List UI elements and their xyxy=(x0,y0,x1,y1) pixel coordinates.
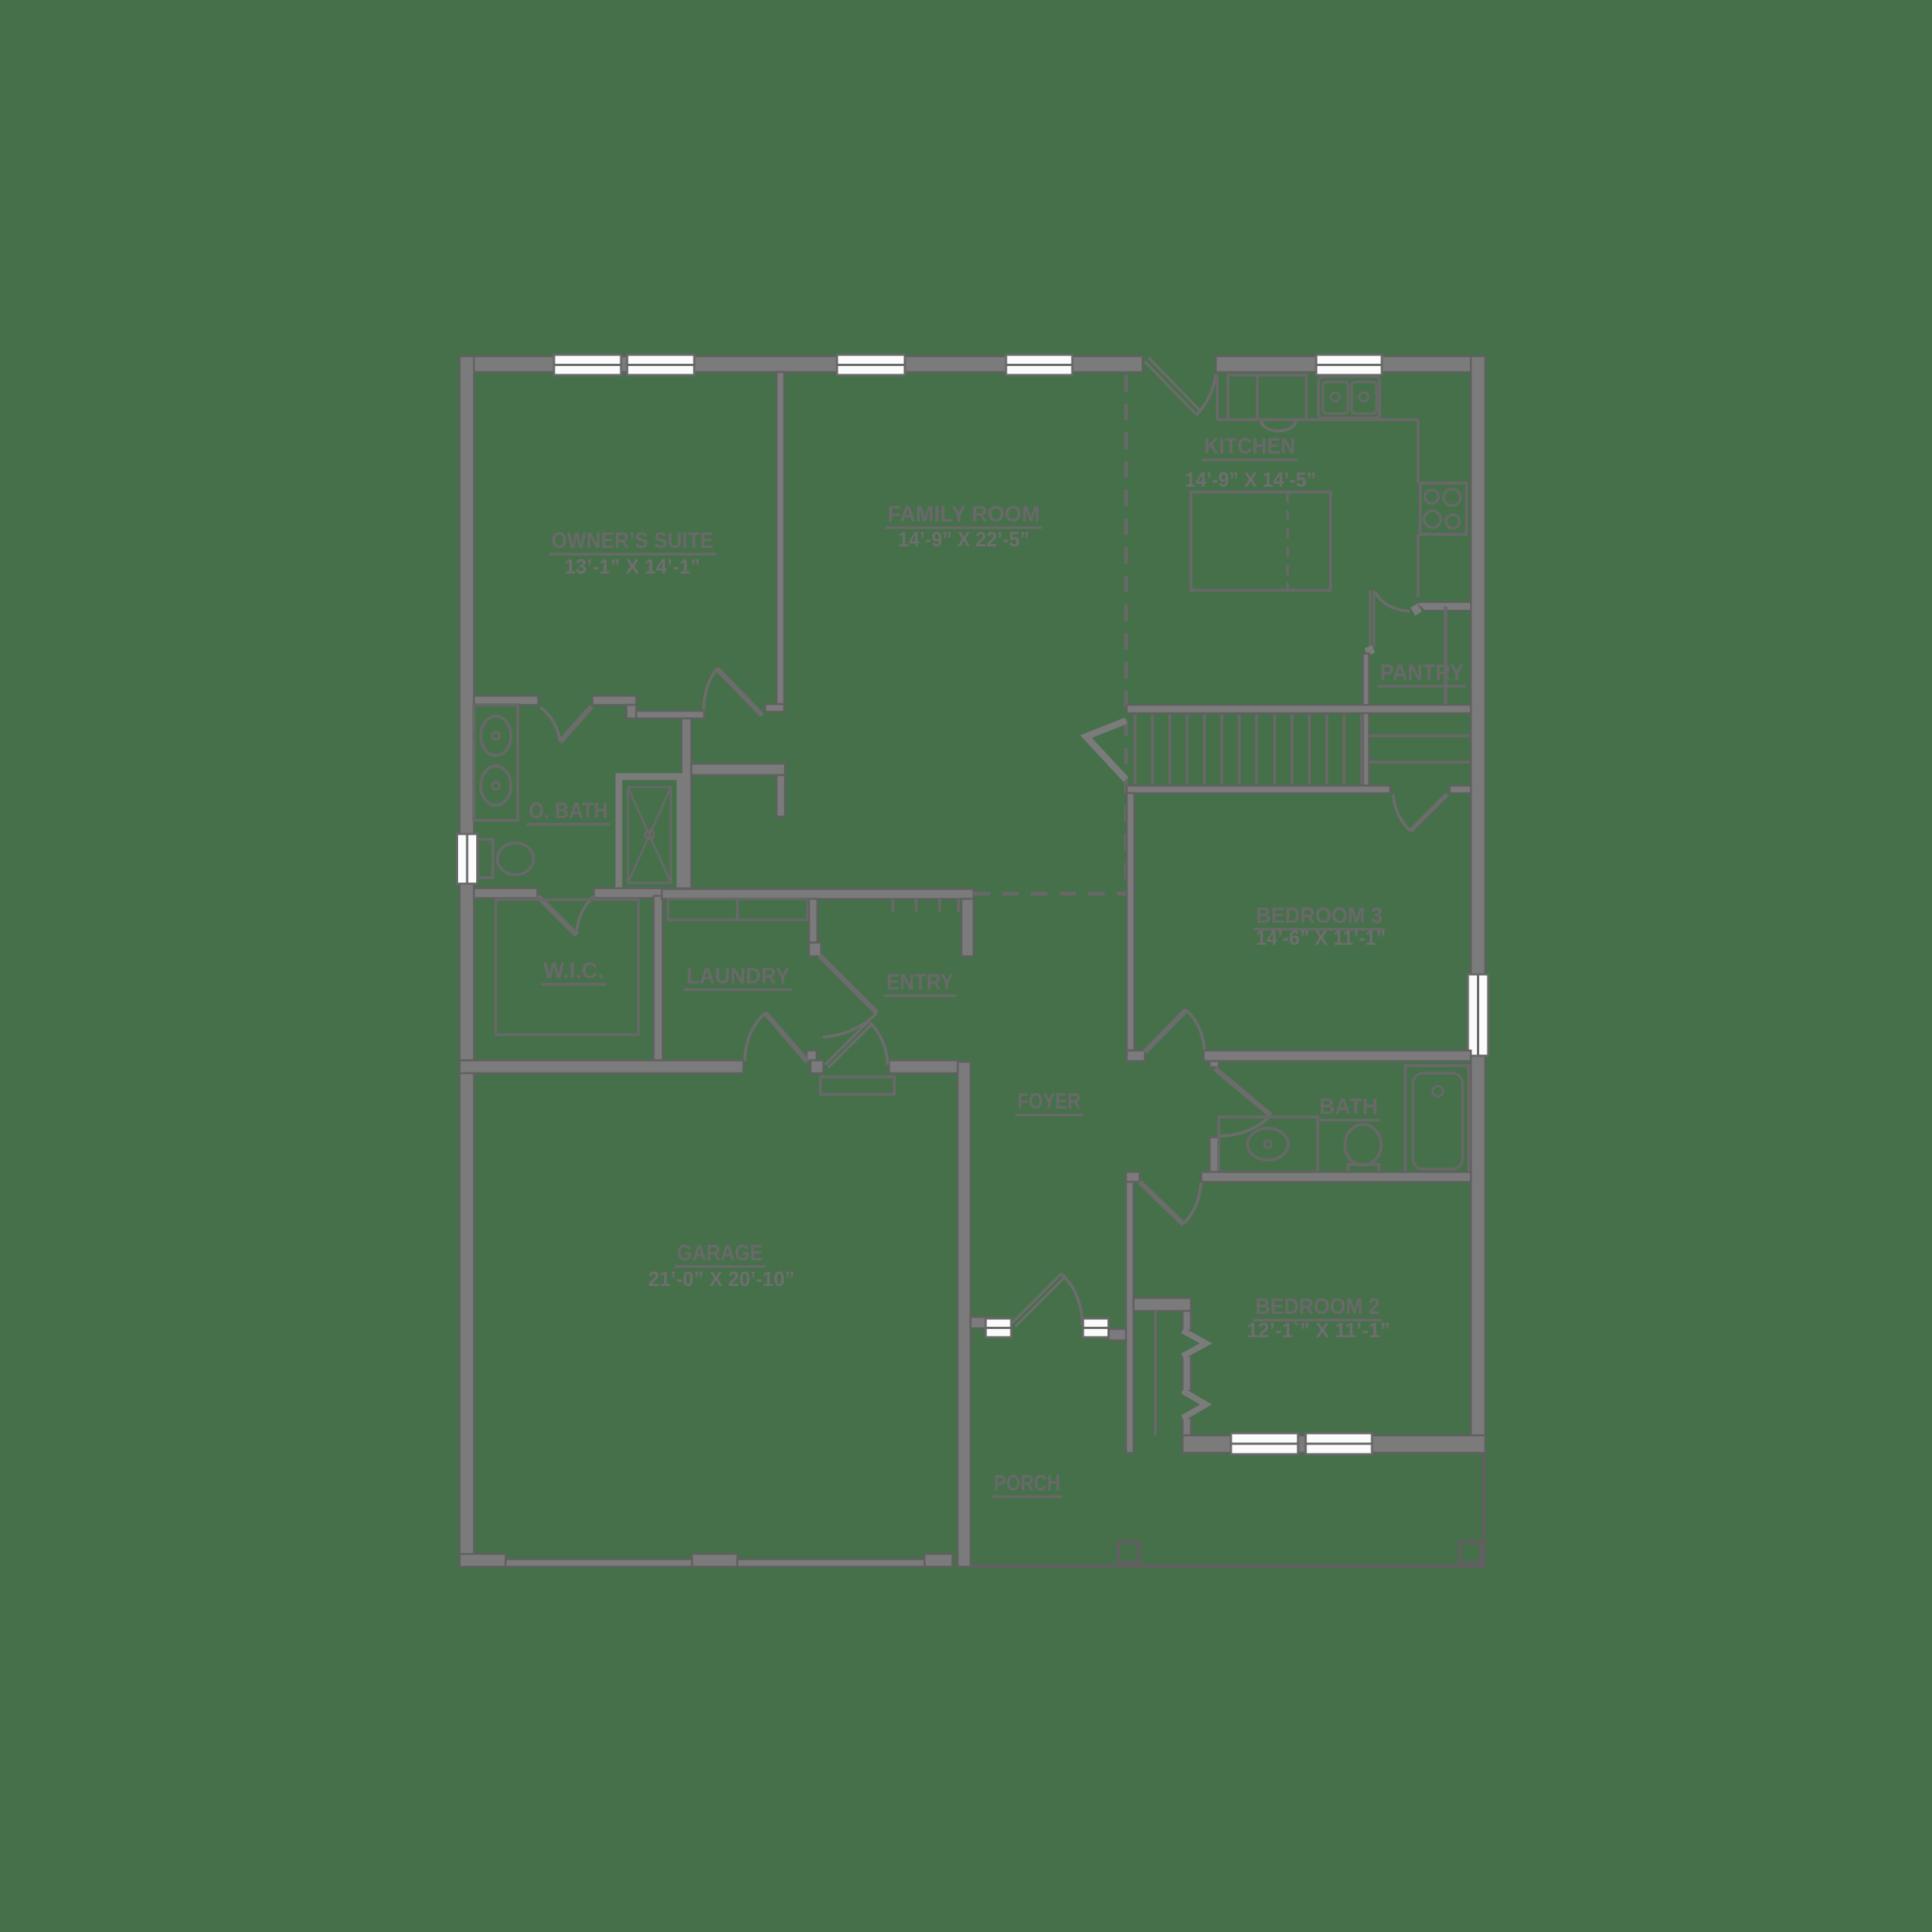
svg-text:LAUNDRY: LAUNDRY xyxy=(687,964,790,989)
svg-text:OWNER’S SUITE: OWNER’S SUITE xyxy=(552,528,714,553)
svg-text:14’-6” X 11’-1”: 14’-6” X 11’-1” xyxy=(1256,926,1386,949)
svg-text:14’-9” X 22’-5”: 14’-9” X 22’-5” xyxy=(898,528,1029,551)
svg-text:BEDROOM 2: BEDROOM 2 xyxy=(1256,1294,1380,1319)
svg-text:FAMILY ROOM: FAMILY ROOM xyxy=(888,502,1040,527)
svg-text:BEDROOM 3: BEDROOM 3 xyxy=(1256,903,1383,928)
svg-text:21’-0” X 20’-10”: 21’-0” X 20’-10” xyxy=(648,1267,795,1291)
svg-text:14’-9” X 14’-5”: 14’-9” X 14’-5” xyxy=(1185,468,1316,491)
svg-text:BATH: BATH xyxy=(1319,1094,1378,1119)
svg-text:GARAGE: GARAGE xyxy=(677,1241,763,1266)
svg-text:O. BATH: O. BATH xyxy=(529,798,608,823)
svg-text:PORCH: PORCH xyxy=(994,1471,1060,1496)
svg-text:ENTRY: ENTRY xyxy=(887,970,954,995)
svg-text:13’-1” X 14’-1”: 13’-1” X 14’-1” xyxy=(565,555,700,578)
svg-text:12’-1`” X 11’-1”: 12’-1`” X 11’-1” xyxy=(1247,1318,1390,1342)
svg-text:PANTRY: PANTRY xyxy=(1380,660,1464,685)
svg-text:W.I.C.: W.I.C. xyxy=(543,958,604,983)
svg-text:KITCHEN: KITCHEN xyxy=(1204,434,1296,459)
svg-text:FOYER: FOYER xyxy=(1017,1089,1081,1114)
